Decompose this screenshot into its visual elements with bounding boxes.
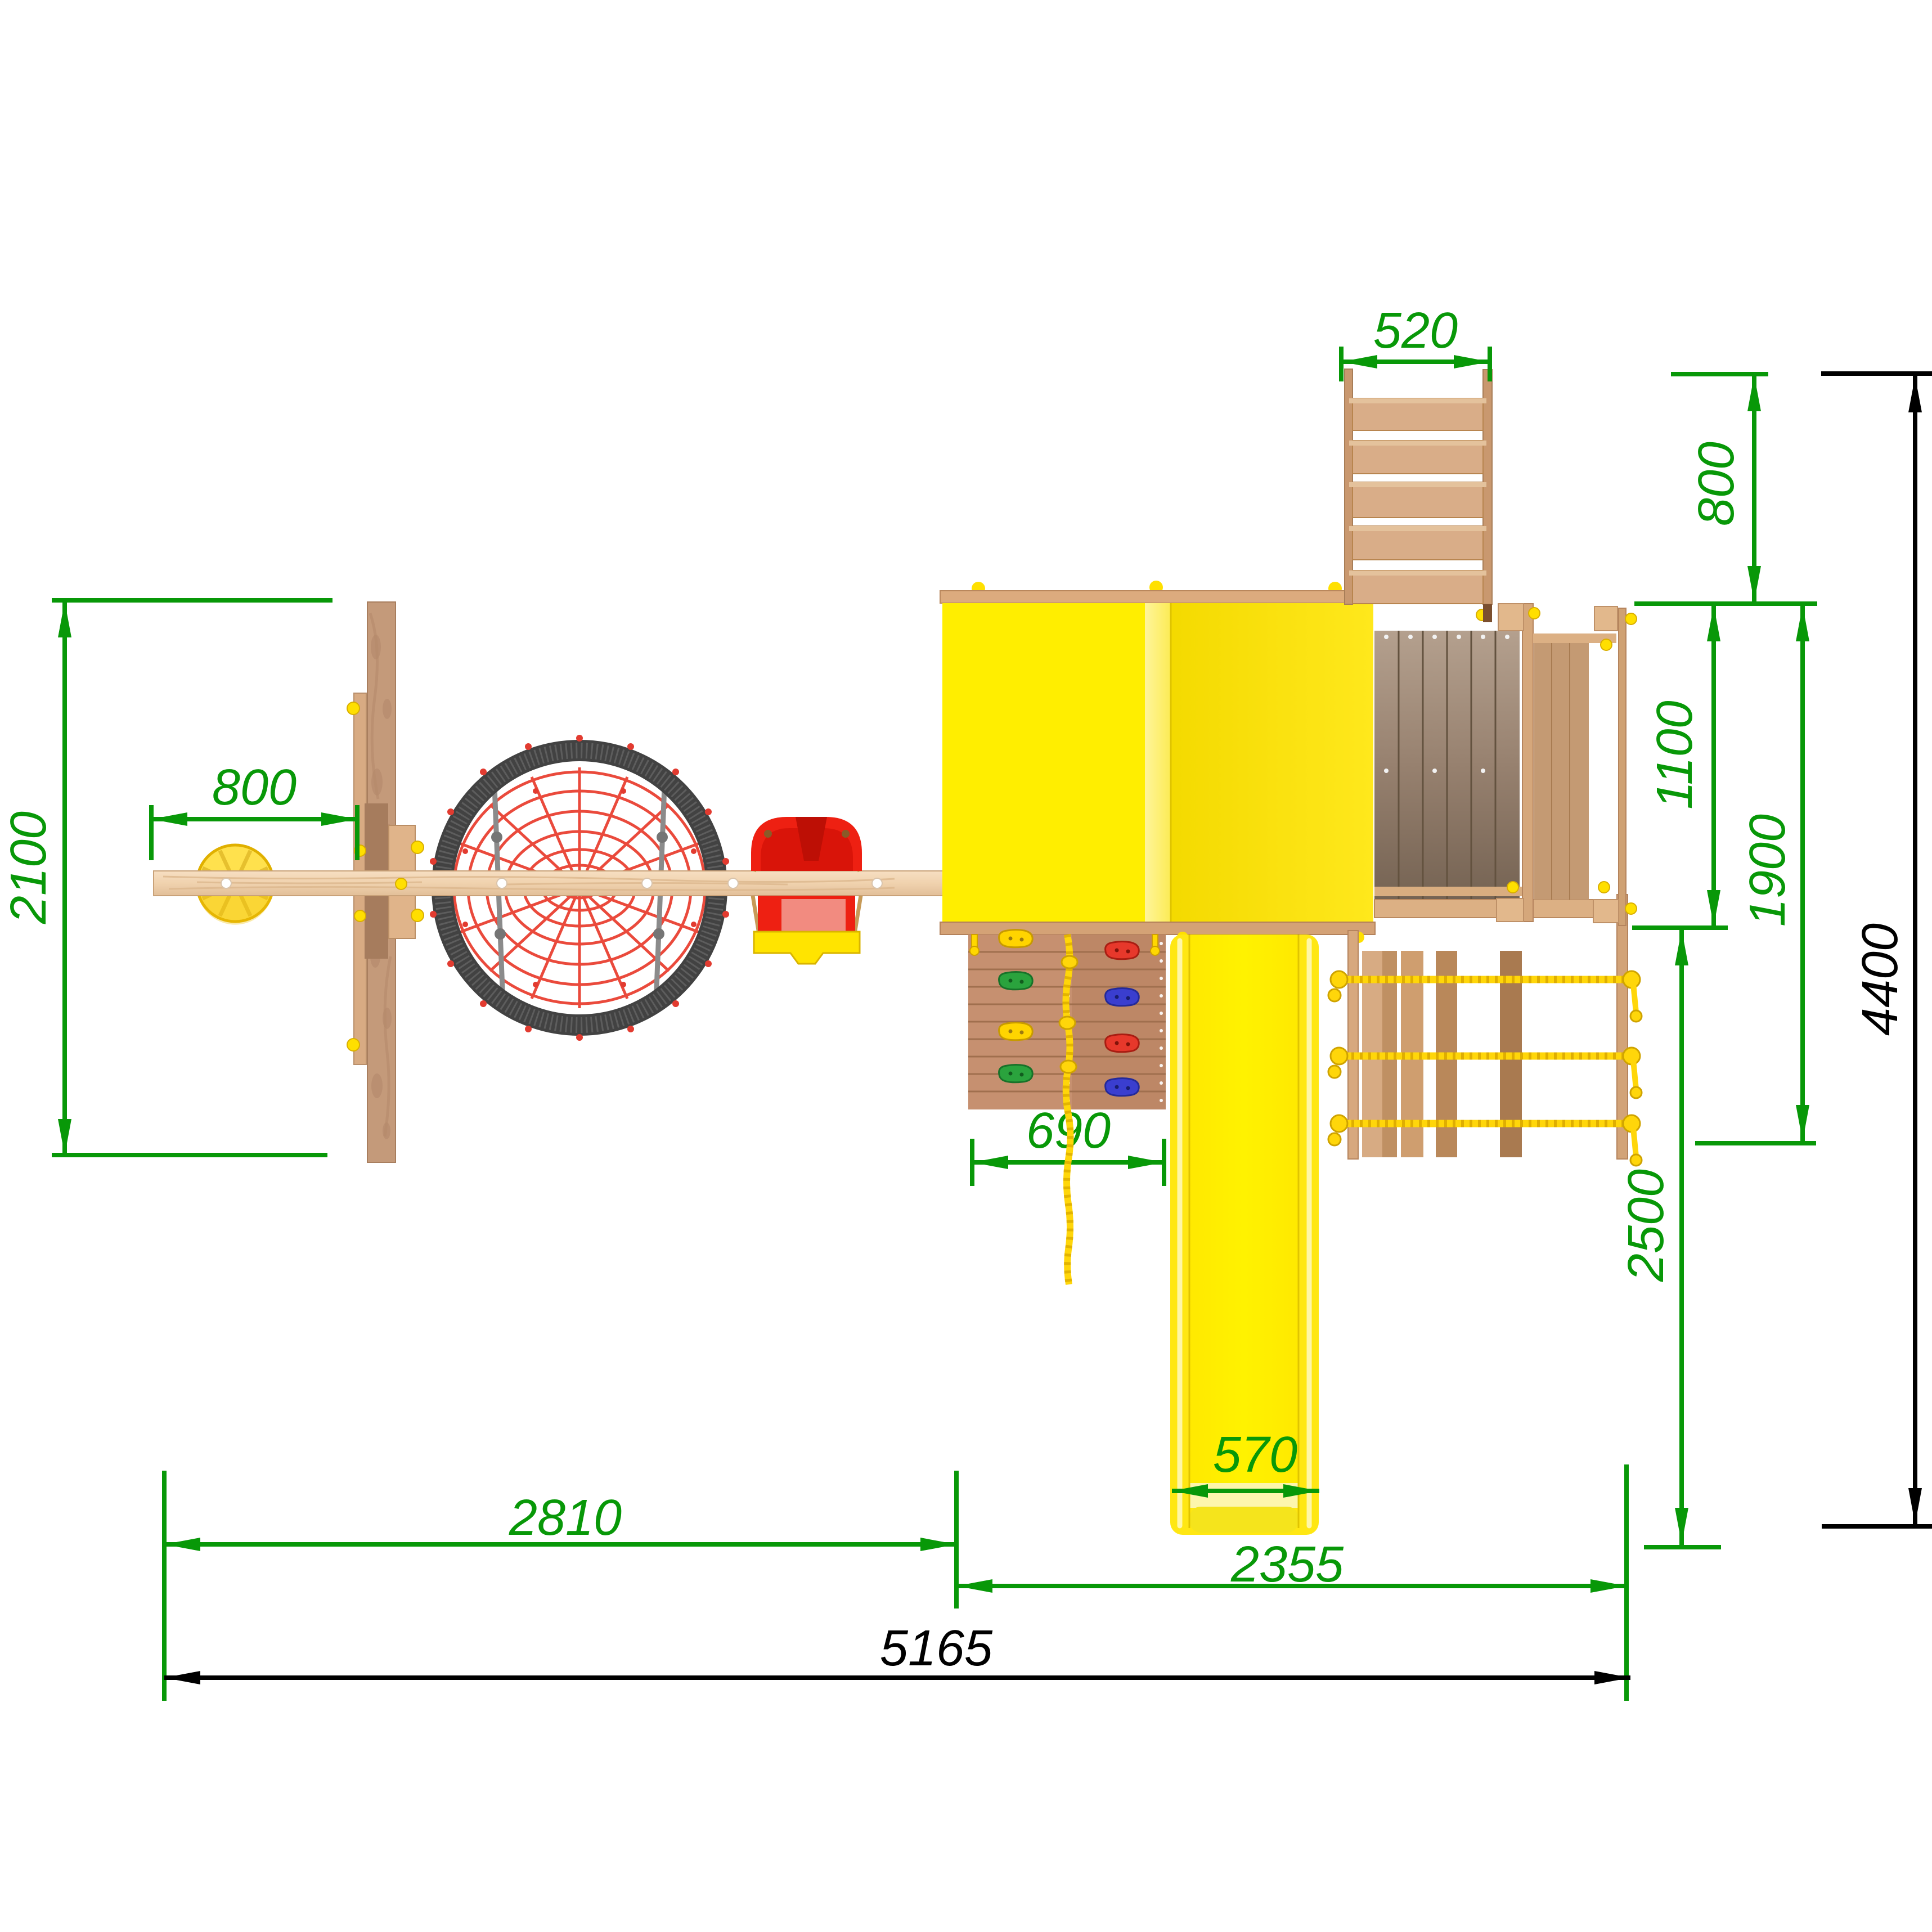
svg-text:2355: 2355 (1230, 1536, 1344, 1593)
svg-text:5165: 5165 (880, 1620, 993, 1677)
svg-text:1100: 1100 (1647, 700, 1703, 810)
svg-text:4400: 4400 (1852, 923, 1908, 1036)
svg-text:2500: 2500 (1618, 1169, 1674, 1282)
svg-text:520: 520 (1373, 303, 1458, 359)
svg-text:800: 800 (212, 760, 296, 816)
svg-text:800: 800 (1688, 442, 1745, 526)
svg-text:2100: 2100 (1, 811, 57, 924)
svg-text:2810: 2810 (509, 1490, 622, 1546)
svg-text:570: 570 (1213, 1427, 1297, 1483)
svg-text:1900: 1900 (1740, 814, 1796, 927)
